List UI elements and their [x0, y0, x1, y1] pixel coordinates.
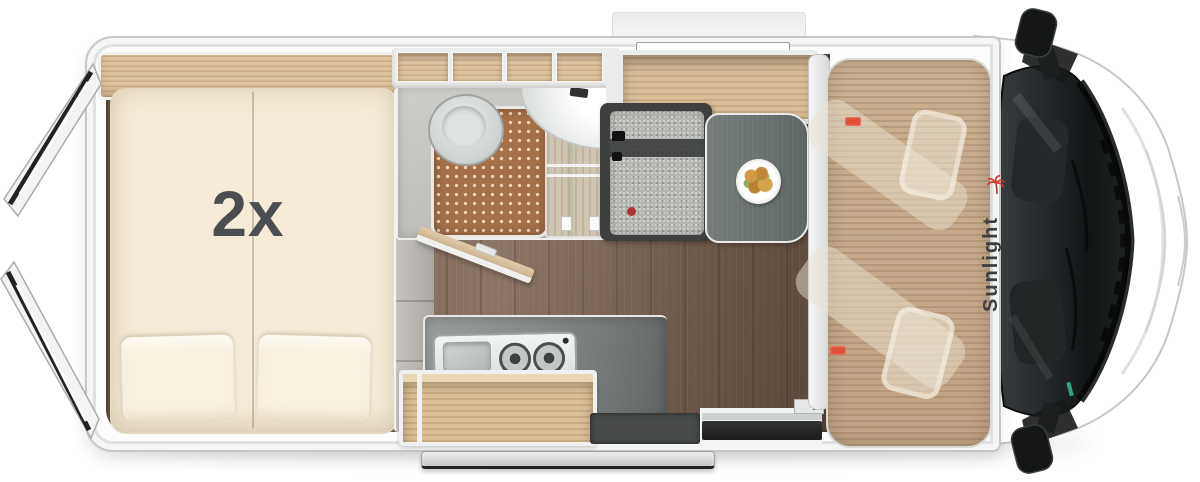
rear-door-bottom-glass	[8, 272, 89, 430]
rear-doors-open	[0, 0, 1200, 482]
campervan-floorplan: 2x	[0, 0, 1200, 482]
rear-door-bottom-frame	[17, 285, 86, 421]
rear-door-top-glass	[10, 72, 91, 204]
rear-door-top-frame	[20, 82, 88, 194]
